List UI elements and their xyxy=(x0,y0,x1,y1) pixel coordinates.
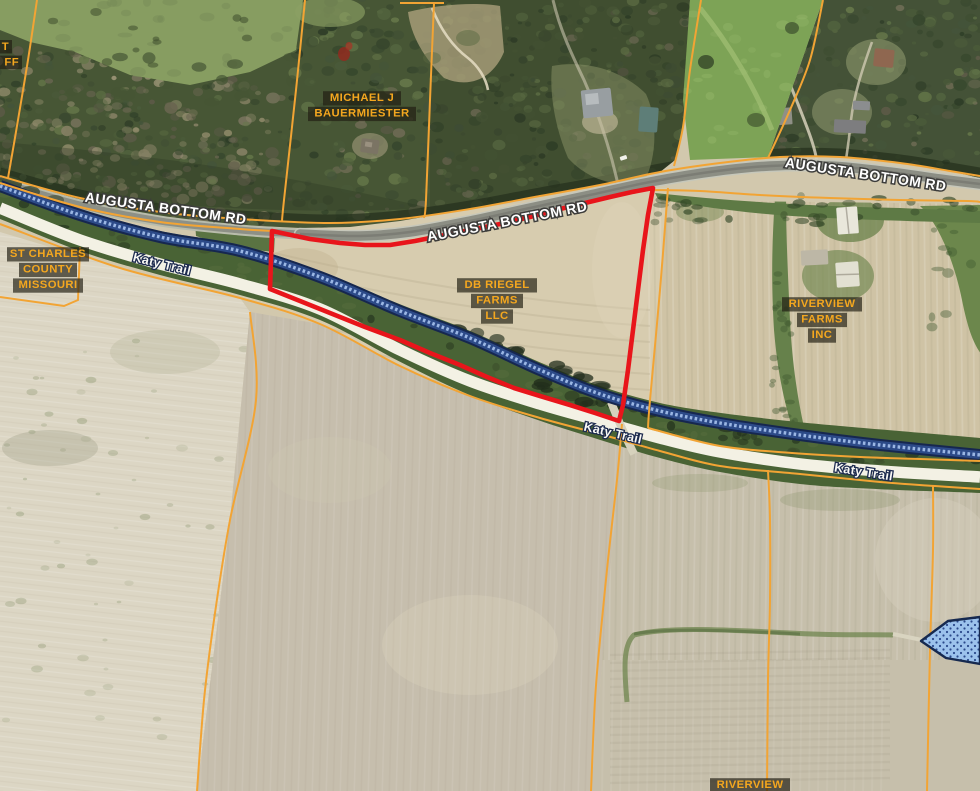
svg-text:ST CHARLES: ST CHARLES xyxy=(10,248,86,260)
svg-text:T: T xyxy=(2,41,9,53)
svg-text:RIVERVIEW: RIVERVIEW xyxy=(789,298,856,310)
svg-text:FARMS: FARMS xyxy=(476,295,518,307)
svg-text:MISSOURI: MISSOURI xyxy=(18,279,77,291)
svg-text:LLC: LLC xyxy=(485,310,508,322)
svg-text:COUNTY: COUNTY xyxy=(23,264,73,276)
svg-text:RIVERVIEW: RIVERVIEW xyxy=(717,779,784,791)
svg-text:FF: FF xyxy=(4,57,19,69)
svg-text:INC: INC xyxy=(812,329,833,341)
svg-text:FARMS: FARMS xyxy=(801,314,843,326)
svg-text:DB RIEGEL: DB RIEGEL xyxy=(464,279,529,291)
svg-text:BAUERMIESTER: BAUERMIESTER xyxy=(314,108,409,120)
svg-text:MICHAEL J: MICHAEL J xyxy=(330,92,394,104)
